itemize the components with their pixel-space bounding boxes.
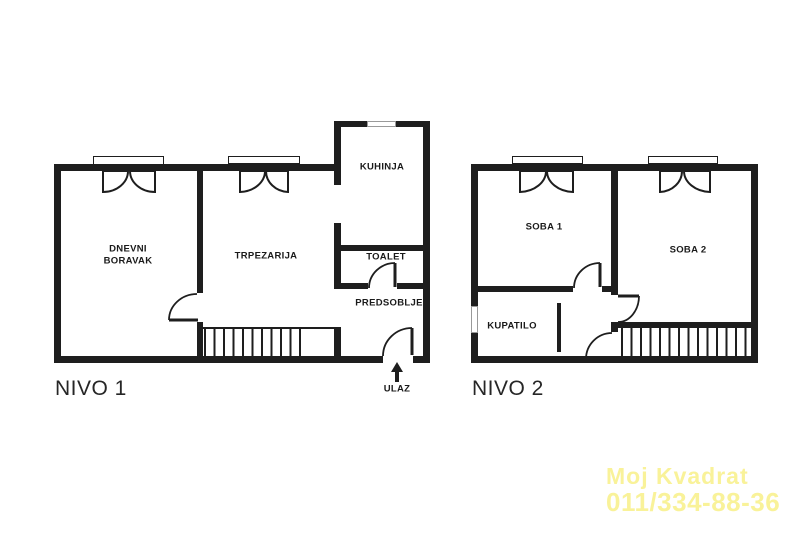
room-label-dining: TRPEZARIJA bbox=[235, 251, 298, 262]
room-label-kitchen: KUHINJA bbox=[360, 162, 404, 173]
room-label-hallway: PREDSOBLJE bbox=[355, 298, 422, 309]
p2-bedroom2-window-left-sash bbox=[660, 171, 682, 192]
p1-living-window-left-sash bbox=[103, 171, 128, 192]
p2-bedroom2-window-frame bbox=[648, 156, 718, 164]
p1-entrance-door-swing bbox=[383, 328, 412, 356]
p2-bathroom-window bbox=[471, 306, 478, 333]
floor-plan-canvas: DNEVNI BORAVAK TRPEZARIJA KUHINJA TOALET… bbox=[0, 0, 800, 533]
watermark-phone: 011/334-88-36 bbox=[606, 489, 780, 515]
entrance-label: ULAZ bbox=[384, 384, 411, 395]
p1-dining-window-left-sash bbox=[240, 171, 265, 192]
room-label-toilet: TOALET bbox=[366, 252, 406, 263]
level-title-nivo2: NIVO 2 bbox=[472, 377, 544, 401]
p1-toilet-wall-bottom-a bbox=[334, 283, 368, 289]
p2-bedroom1-door-swing bbox=[574, 263, 600, 288]
p1-dining-window-right-sash bbox=[266, 171, 288, 192]
p1-living-door-swing bbox=[169, 294, 197, 320]
room-label-bathroom: KUPATILO bbox=[487, 321, 537, 332]
watermark-brand: Moj Kvadrat bbox=[606, 463, 780, 489]
p2-bedroom2-door-swing bbox=[618, 296, 639, 322]
room-label-bedroom2: SOBA 2 bbox=[670, 245, 707, 256]
p1-wall-right bbox=[423, 121, 430, 363]
p2-bedroom2-window-right-sash bbox=[684, 171, 710, 192]
p1-kitchen-wall-left-lower bbox=[334, 223, 341, 289]
p1-living-window-right-sash bbox=[130, 171, 155, 192]
p1-toilet-wall-top bbox=[334, 245, 430, 251]
p2-bedroom1-window-left-sash bbox=[520, 171, 546, 192]
p1-stairs-treads bbox=[204, 329, 303, 356]
door-window-symbols bbox=[0, 0, 800, 533]
p2-wall-right bbox=[751, 164, 758, 363]
p2-wall-bottom bbox=[471, 356, 758, 363]
p2-wall-top bbox=[471, 164, 758, 171]
p2-stairs-treads bbox=[621, 328, 749, 356]
p1-living-window-frame bbox=[93, 156, 164, 165]
p2-bathroom-partition bbox=[557, 303, 561, 352]
p2-bedroom1-window-frame bbox=[512, 156, 583, 164]
p1-toilet-wall-bottom-b bbox=[397, 283, 423, 289]
p1-wall-top bbox=[54, 164, 341, 171]
p2-bathroom-wall-top-a bbox=[478, 286, 573, 292]
p1-toilet-door-swing bbox=[369, 263, 395, 288]
p2-bathroom-wall-top-b bbox=[602, 286, 618, 292]
p1-divider-living-dining-upper bbox=[197, 171, 203, 293]
room-label-bedroom1: SOBA 1 bbox=[526, 222, 563, 233]
level-title-nivo1: NIVO 1 bbox=[55, 377, 127, 401]
p1-wall-bottom-a bbox=[54, 356, 383, 363]
watermark: Moj Kvadrat 011/334-88-36 bbox=[606, 463, 780, 515]
p1-kitchen-window bbox=[367, 121, 396, 127]
entrance-arrow-shaft bbox=[395, 371, 399, 382]
p1-wall-left bbox=[54, 164, 61, 363]
p1-kitchen-wall-left-upper bbox=[334, 121, 341, 185]
p1-dining-window-frame bbox=[228, 156, 300, 164]
p1-wall-right-of-stairs bbox=[334, 327, 341, 356]
room-label-living: DNEVNI BORAVAK bbox=[96, 244, 160, 267]
p2-wall-left bbox=[471, 164, 478, 363]
p2-divider-mid-segment bbox=[611, 322, 618, 332]
p2-bedroom1-window-right-sash bbox=[547, 171, 573, 192]
p2-divider-bedrooms bbox=[611, 171, 618, 295]
